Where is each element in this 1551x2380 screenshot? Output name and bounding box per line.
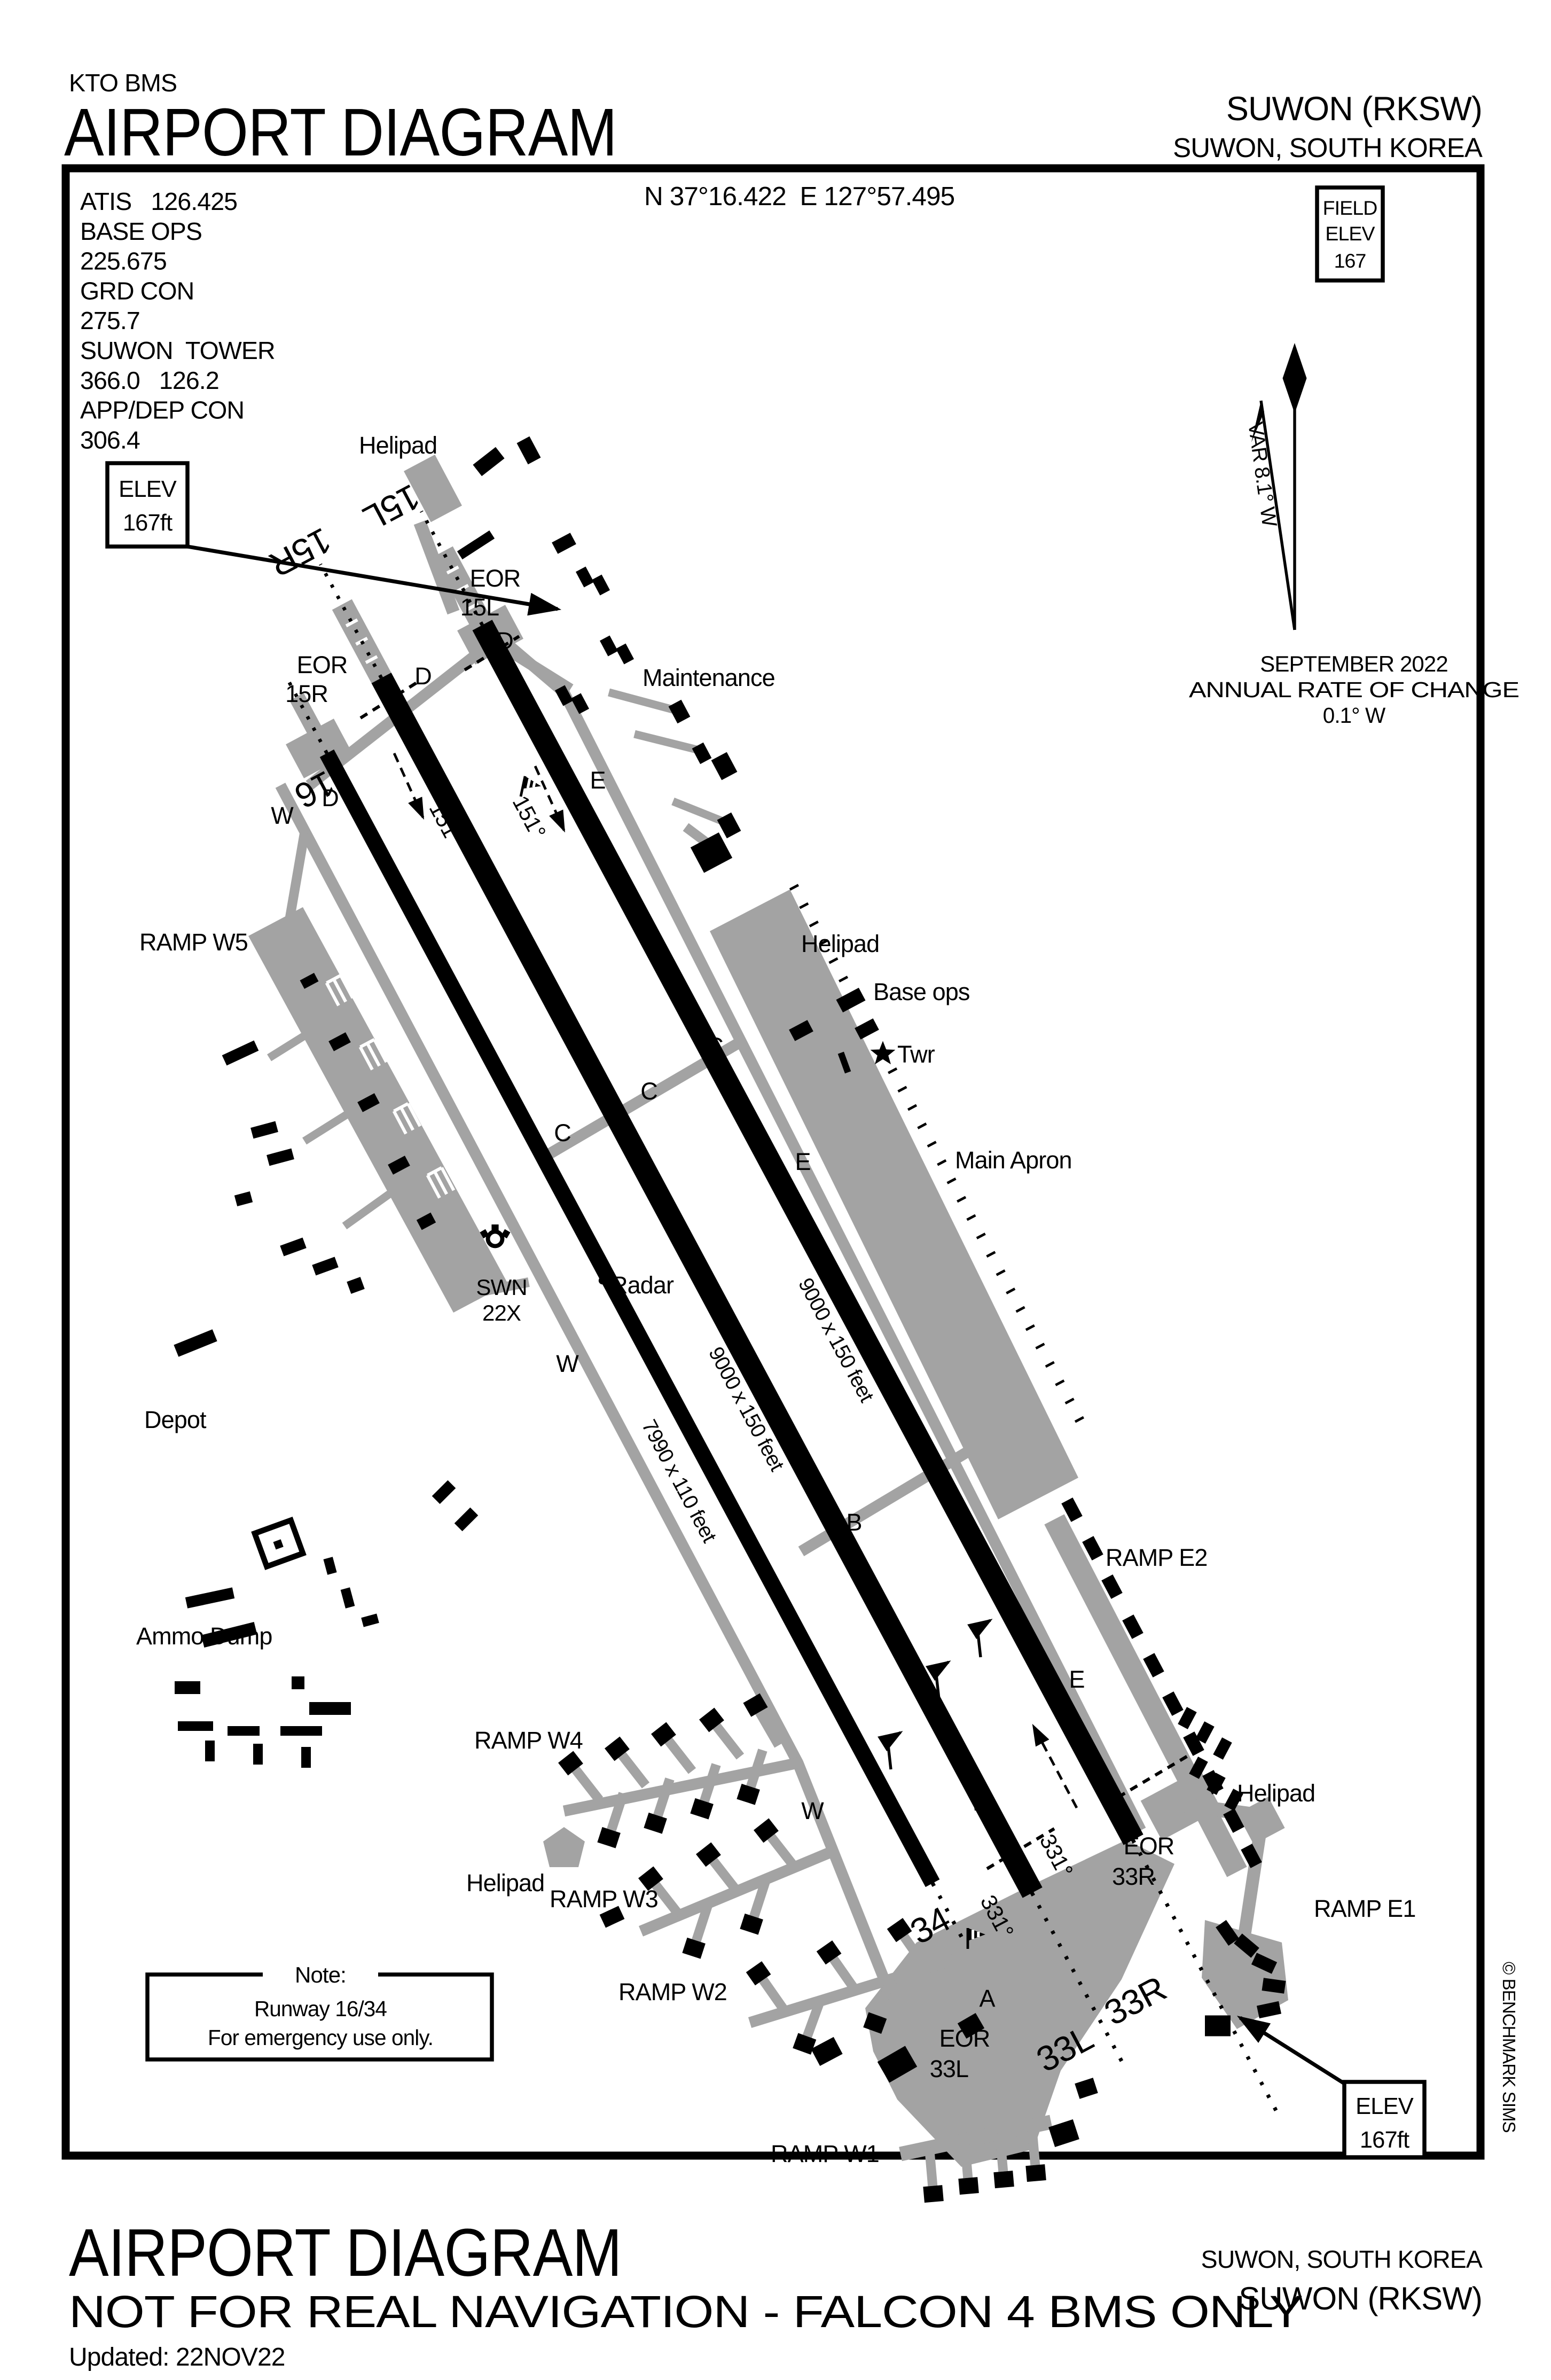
taxiway-e-label: E (590, 767, 605, 794)
copyright: © BENCHMARK SIMS (1499, 1962, 1519, 2133)
runway-15l-33r (433, 547, 1143, 1845)
note-line: Runway 16/34 (254, 1996, 387, 2021)
variation-rate-value: 0.1° W (1323, 703, 1386, 728)
ramp-w2-label: RAMP W2 (618, 1978, 727, 2006)
eor-labels: EOR15L EOR15R EOR33L EOR33R (0, 0, 1186, 2082)
taxiway-c-label: C (554, 1119, 571, 1146)
field-elev-line: ELEV (1325, 222, 1375, 245)
elev-label: ELEV (1356, 2094, 1414, 2119)
note-box: Note: Runway 16/34 For emergency use onl… (147, 1962, 492, 2059)
taxiway-c-label: C (706, 1033, 723, 1060)
comm-line: SUWON TOWER (80, 337, 275, 364)
taxiway-w (280, 785, 937, 2071)
footer-disclaimer: NOT FOR REAL NAVIGATION - FALCON 4 BMS O… (69, 2287, 1303, 2337)
helipad-west-pad (543, 1827, 585, 1867)
header: KTO BMS AIRPORT DIAGRAM SUWON (RKSW) SUW… (64, 69, 1483, 170)
taxiway-e (564, 692, 1141, 1830)
taxiway-a-label: A (979, 1985, 995, 2012)
main-apron-label: Main Apron (955, 1146, 1072, 1174)
field-elev-line: FIELD (1323, 197, 1377, 219)
taxiway-w-label: W (556, 1350, 579, 1377)
comm-line: 275.7 (80, 307, 140, 334)
comm-line: 306.4 (80, 426, 140, 454)
comm-line: 225.675 (80, 247, 167, 275)
ammo-dump-label: Ammo Dump (136, 1622, 272, 1650)
taxiway-c-label: C (640, 1078, 657, 1105)
radar-dot-icon (599, 1277, 606, 1284)
comm-line: ATIS 126.425 (80, 188, 237, 215)
comm-line: GRD CON (80, 277, 194, 305)
comm-frequencies: ATIS 126.425 BASE OPS 225.675 GRD CON 27… (80, 188, 275, 454)
airport-location: SUWON, SOUTH KOREA (1173, 132, 1483, 163)
base-ops-label: Base ops (873, 978, 969, 1005)
page-title: AIRPORT DIAGRAM (64, 95, 617, 170)
comm-line: BASE OPS (80, 217, 202, 245)
helipad-label-top: Helipad (359, 432, 437, 459)
ramp-e2-surface (1054, 1519, 1237, 1872)
tacan-channel-label: 22X (482, 1300, 521, 1325)
footer-location: SUWON, SOUTH KOREA (1201, 2245, 1483, 2273)
helipad-label-mid: Helipad (801, 930, 879, 957)
helipad-label-west: Helipad (466, 1869, 544, 1897)
taxiway-e-label: E (1069, 1666, 1084, 1693)
ramp-e1-label: RAMP E1 (1314, 1895, 1415, 1922)
chart-org: KTO BMS (69, 69, 177, 97)
tower-star-icon (871, 1041, 896, 1065)
ramp-w4-label: RAMP W4 (474, 1727, 583, 1754)
field-elev-box: FIELD ELEV 167 (1317, 188, 1383, 280)
comm-line: APP/DEP CON (80, 396, 244, 424)
elev-value: 167ft (1360, 2127, 1409, 2153)
taxiway-b-label: B (926, 1448, 942, 1475)
magnetic-variation-note: SEPTEMBER 2022 ANNUAL RATE OF CHANGE 0.1… (1189, 651, 1519, 728)
taxiway-b-label: B (846, 1509, 861, 1536)
ammo-dump-buildings (175, 1676, 351, 1768)
elev-callout-bottom: ELEV 167ft (1240, 2018, 1424, 2157)
ramp-w1-label: RAMP W1 (771, 2140, 879, 2167)
airport-name: SUWON (RKSW) (1226, 90, 1482, 128)
radar-label: Radar (610, 1271, 674, 1299)
depot-buildings (255, 1520, 303, 1567)
ramp-w4-stands (558, 1694, 787, 1848)
taxiway-d-label: D (414, 662, 432, 690)
footer-updated: Updated: 22NOV22 (69, 2343, 285, 2371)
compass-rose: VAR 8.1° W (1243, 343, 1306, 630)
taxiway-d-label: D (496, 627, 513, 654)
footer-title: AIRPORT DIAGRAM (69, 2215, 622, 2290)
ramp-w3-stands (638, 1819, 802, 1959)
coordinates: N 37°16.422 E 127°57.495 (644, 182, 954, 211)
variation-date: SEPTEMBER 2022 (1260, 651, 1448, 676)
note-title: Note: (295, 1962, 346, 1987)
maintenance-label: Maintenance (643, 664, 775, 691)
taxiway-d-label: D (322, 784, 339, 811)
variation-label: VAR 8.1° W (1243, 420, 1281, 528)
taxiway-w-label: W (801, 1797, 824, 1824)
field-elev-value: 167 (1334, 249, 1366, 272)
depot-label: Depot (144, 1406, 207, 1433)
twr-label: Twr (897, 1041, 935, 1068)
ramp-w4-surface (564, 1763, 798, 1811)
taxiway-e-label: E (795, 1148, 810, 1175)
variation-rate-label: ANNUAL RATE OF CHANGE (1189, 677, 1519, 702)
elev-label: ELEV (119, 477, 177, 502)
ramp-w5-label: RAMP W5 (139, 928, 248, 956)
footer: AIRPORT DIAGRAM NOT FOR REAL NAVIGATION … (69, 2215, 1483, 2371)
heading-15l: 151° (508, 791, 551, 842)
elev-arrow (1240, 2018, 1344, 2084)
ramp-w3-label: RAMP W3 (550, 1885, 658, 1913)
taxiway-w-label: W (271, 802, 294, 829)
footer-airport: SUWON (RKSW) (1239, 2281, 1482, 2316)
helipad-label-se: Helipad (1237, 1780, 1315, 1807)
elev-value: 167ft (123, 510, 173, 536)
tacan-name-label: SWN (476, 1275, 527, 1300)
comm-line: 366.0 126.2 (80, 366, 219, 394)
airport-diagram-chart: KTO BMS AIRPORT DIAGRAM SUWON (RKSW) SUW… (0, 0, 1551, 2380)
note-line: For emergency use only. (208, 2025, 433, 2050)
ramp-e2-label: RAMP E2 (1106, 1544, 1207, 1571)
